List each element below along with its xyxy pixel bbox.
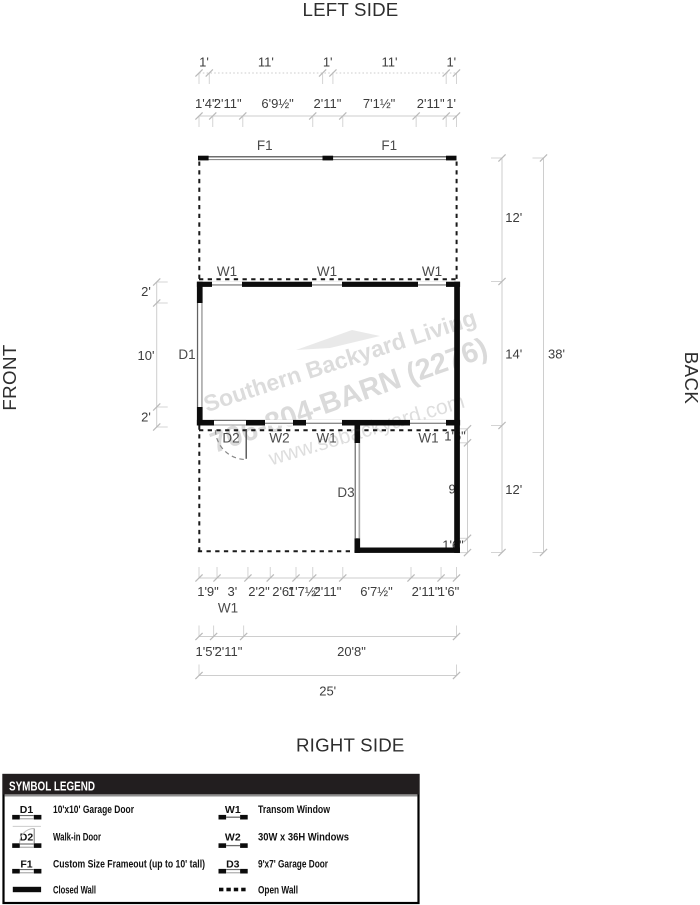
svg-text:Custom Size Frameout (up to 10: Custom Size Frameout (up to 10' tall) xyxy=(53,858,205,870)
svg-text:W1: W1 xyxy=(217,264,237,279)
svg-text:F1: F1 xyxy=(381,138,397,153)
svg-text:D1: D1 xyxy=(20,804,34,816)
svg-text:1'9": 1'9" xyxy=(197,584,219,599)
svg-text:2': 2' xyxy=(141,410,151,425)
svg-text:2'11": 2'11" xyxy=(313,584,341,599)
svg-text:D2: D2 xyxy=(20,831,34,843)
svg-text:W1: W1 xyxy=(422,264,442,279)
svg-text:W1: W1 xyxy=(225,804,241,816)
svg-text:Open Wall: Open Wall xyxy=(258,885,298,897)
svg-text:Closed Wall: Closed Wall xyxy=(53,885,96,897)
svg-text:2'2": 2'2" xyxy=(248,584,270,599)
svg-text:Walk-in Door: Walk-in Door xyxy=(53,831,102,843)
svg-text:W1: W1 xyxy=(316,431,336,446)
svg-text:30W x 36H Windows: 30W x 36H Windows xyxy=(258,831,349,843)
svg-text:D2: D2 xyxy=(222,431,239,446)
svg-text:LEFT SIDE: LEFT SIDE xyxy=(303,0,399,20)
svg-text:2'11": 2'11" xyxy=(417,96,445,111)
svg-text:D3: D3 xyxy=(226,858,240,870)
svg-text:2'11": 2'11" xyxy=(214,96,242,111)
svg-text:14': 14' xyxy=(505,347,522,362)
svg-text:FRONT: FRONT xyxy=(0,344,20,410)
svg-text:1': 1' xyxy=(199,55,209,70)
svg-text:1': 1' xyxy=(446,96,456,111)
svg-text:2'11": 2'11" xyxy=(313,96,341,111)
svg-text:3': 3' xyxy=(228,584,238,599)
svg-text:10'x10' Garage Door: 10'x10' Garage Door xyxy=(53,804,135,816)
svg-text:1': 1' xyxy=(323,55,333,70)
svg-text:1'6": 1'6" xyxy=(438,584,460,599)
svg-text:1': 1' xyxy=(446,55,456,70)
svg-text:2': 2' xyxy=(141,284,151,299)
svg-text:7'1½": 7'1½" xyxy=(363,96,396,111)
svg-text:W2: W2 xyxy=(269,431,289,446)
svg-text:D3: D3 xyxy=(337,485,354,500)
svg-text:38': 38' xyxy=(548,347,565,362)
svg-text:12': 12' xyxy=(505,482,522,497)
svg-text:11': 11' xyxy=(258,55,274,70)
svg-text:F1: F1 xyxy=(257,138,273,153)
svg-text:W1: W1 xyxy=(218,601,238,616)
svg-text:25': 25' xyxy=(319,684,336,699)
svg-text:BACK: BACK xyxy=(681,352,700,405)
svg-text:10': 10' xyxy=(138,348,155,363)
svg-text:9'x7' Garage Door: 9'x7' Garage Door xyxy=(258,858,329,870)
svg-text:6'7½": 6'7½" xyxy=(360,584,393,599)
svg-text:Transom Window: Transom Window xyxy=(258,804,330,816)
svg-text:12': 12' xyxy=(505,210,522,225)
svg-text:SYMBOL LEGEND: SYMBOL LEGEND xyxy=(9,779,95,794)
svg-text:11': 11' xyxy=(382,55,398,70)
svg-text:2'11": 2'11" xyxy=(215,644,243,659)
svg-text:20'8": 20'8" xyxy=(337,644,366,659)
svg-text:6'9½": 6'9½" xyxy=(261,96,294,111)
svg-text:D1: D1 xyxy=(178,347,195,362)
svg-text:2'11": 2'11" xyxy=(412,584,440,599)
svg-text:W2: W2 xyxy=(225,831,241,843)
svg-text:RIGHT SIDE: RIGHT SIDE xyxy=(296,735,405,756)
svg-text:W1: W1 xyxy=(418,431,438,446)
svg-text:W1: W1 xyxy=(317,264,337,279)
svg-text:F1: F1 xyxy=(20,858,32,870)
